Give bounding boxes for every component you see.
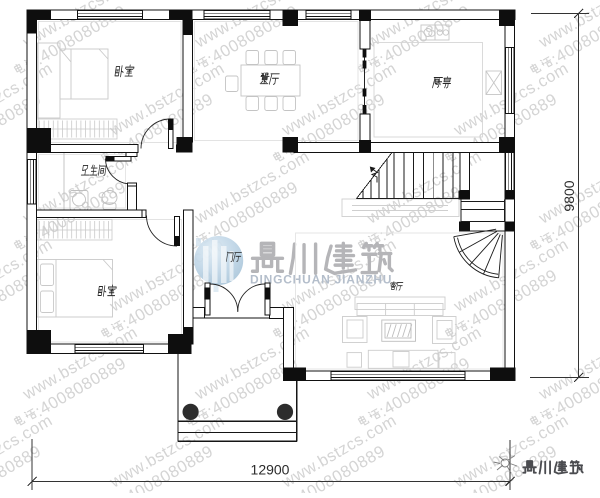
- svg-text:DINGCHUAN JIANZHU: DINGCHUAN JIANZHU: [250, 273, 392, 287]
- svg-text:9800: 9800: [561, 180, 577, 211]
- svg-text:12900: 12900: [251, 462, 290, 478]
